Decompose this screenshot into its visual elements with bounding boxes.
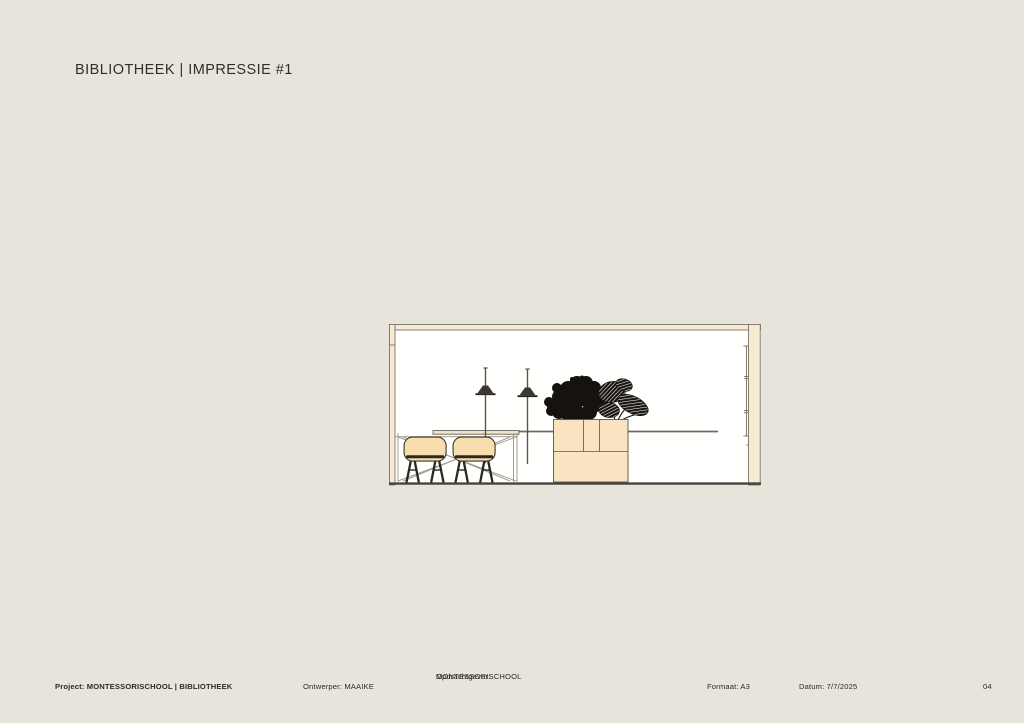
- page-number: 04: [983, 682, 992, 691]
- chair-seat: [406, 455, 444, 458]
- page-title: BIBLIOTHEEK | IMPRESSIE #1: [75, 62, 293, 78]
- designer-field: Ontwerper: MAAIKE: [303, 682, 374, 691]
- elevation-svg: [389, 324, 761, 487]
- presentation-sheet: { "title": "BIBLIOTHEEK | IMPRESSIE #1",…: [0, 0, 1024, 723]
- chair-seat: [455, 455, 493, 458]
- date-field: Datum: 7/7/2025: [799, 682, 857, 691]
- wall-left-section: [389, 324, 395, 485]
- ceiling-section: [389, 324, 760, 330]
- plant-cabinet: [554, 420, 629, 483]
- project-field: Project: MONTESSORISCHOOL | BIBLIOTHEEK: [55, 682, 232, 691]
- elevation-drawing: [389, 324, 761, 487]
- format-field: Formaat: A3: [707, 682, 750, 691]
- client-value: MONTESSORISCHOOL: [436, 670, 522, 684]
- table-top: [433, 431, 519, 435]
